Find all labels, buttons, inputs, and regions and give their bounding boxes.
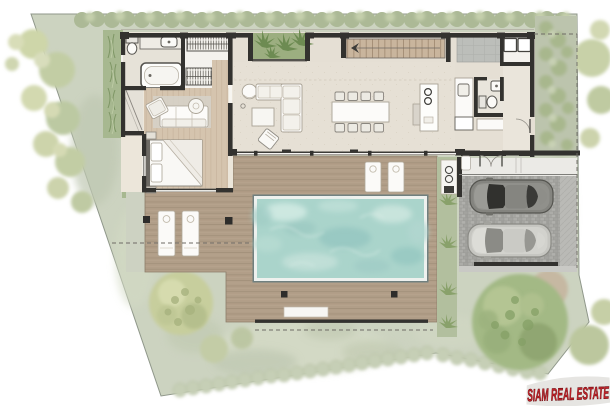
svg-text:SIAM REAL ESTATE: SIAM REAL ESTATE: [527, 383, 610, 406]
